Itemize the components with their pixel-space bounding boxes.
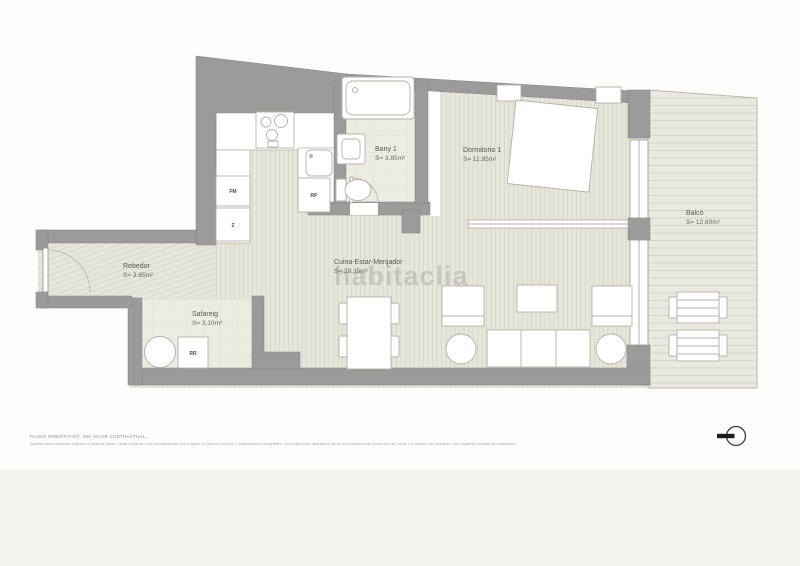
footer-band: Brava Palamós SMART HOME <box>0 470 800 566</box>
side-table-icon <box>446 334 476 364</box>
hall-floor <box>38 243 216 298</box>
dining-table-icon <box>339 297 399 369</box>
armchair-icon <box>592 286 632 326</box>
kitchen-sink-icon <box>306 150 332 176</box>
plan-disclaimer: PLANO ORIENTATIVO. SIN VALOR CONTRACTUAL… <box>30 434 790 447</box>
floorplan-drawing: FM Z RP RR <box>0 0 800 470</box>
label-rr: RR <box>189 351 197 357</box>
disclaimer-line-2: Aquesta documentació s'ajusta al project… <box>30 441 790 447</box>
nightstand-icon <box>497 85 521 101</box>
plan-area: FM Z RP RR habitaclia Rebedor S= 3.65m² … <box>0 0 800 470</box>
sofa-icon <box>487 330 590 367</box>
side-table-icon <box>596 334 626 364</box>
north-arrow-icon <box>715 420 757 454</box>
sliding-wardrobe-icon <box>468 220 628 228</box>
label-fm: FM <box>229 189 236 195</box>
balcony-lounger-icon <box>669 292 727 323</box>
washbasin-icon <box>337 134 365 164</box>
label-z: Z <box>231 223 234 229</box>
washer-icon <box>145 337 176 368</box>
toilet-icon <box>336 179 371 201</box>
floorplan-sheet: FM Z RP RR habitaclia Rebedor S= 3.65m² … <box>0 0 800 566</box>
nightstand-icon <box>596 87 621 103</box>
balcony-lounger-icon <box>669 330 727 361</box>
armchair-icon <box>442 286 484 326</box>
disclaimer-line-1: PLANO ORIENTATIVO. SIN VALOR CONTRACTUAL… <box>30 434 790 441</box>
bathtub-icon <box>342 77 414 119</box>
coffee-table-icon <box>517 285 557 312</box>
label-rp: RP <box>311 193 319 199</box>
bedroom-door-gap <box>428 86 440 216</box>
cooktop-icon <box>256 112 294 148</box>
